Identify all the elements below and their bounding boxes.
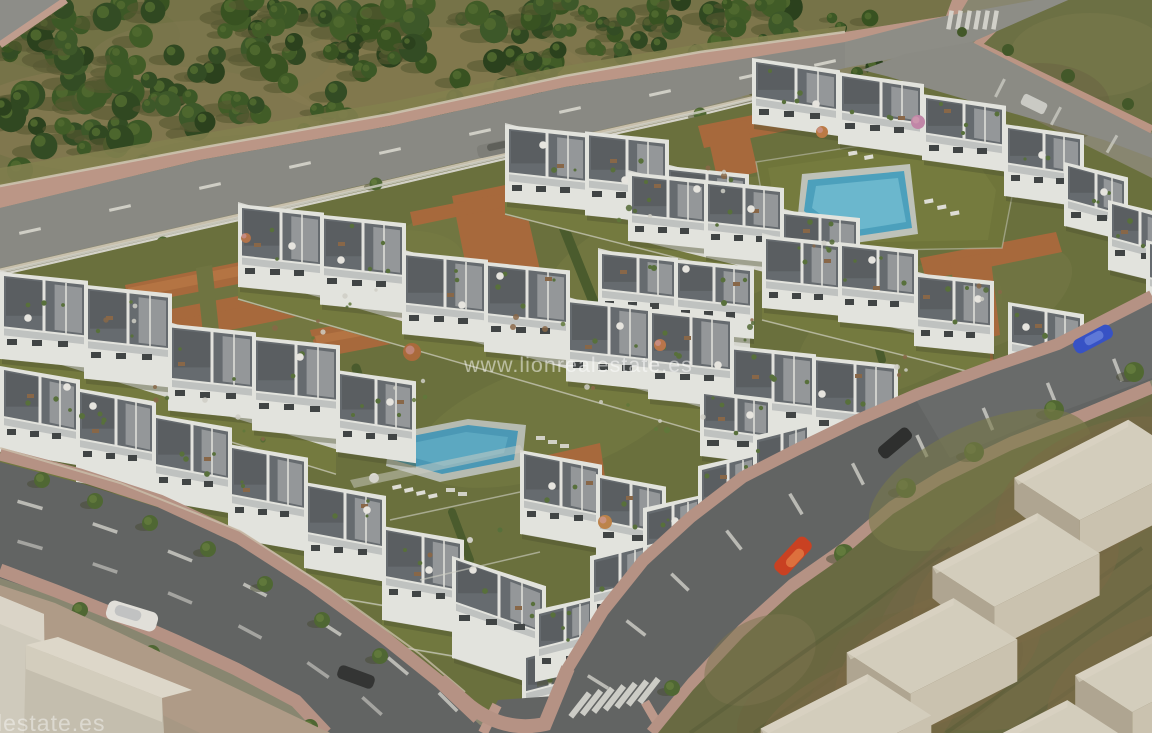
svg-text:www.lionrealestate.es: www.lionrealestate.es: [463, 353, 693, 377]
svg-text:www.lionrealestate.es: www.lionrealestate.es: [0, 710, 105, 733]
